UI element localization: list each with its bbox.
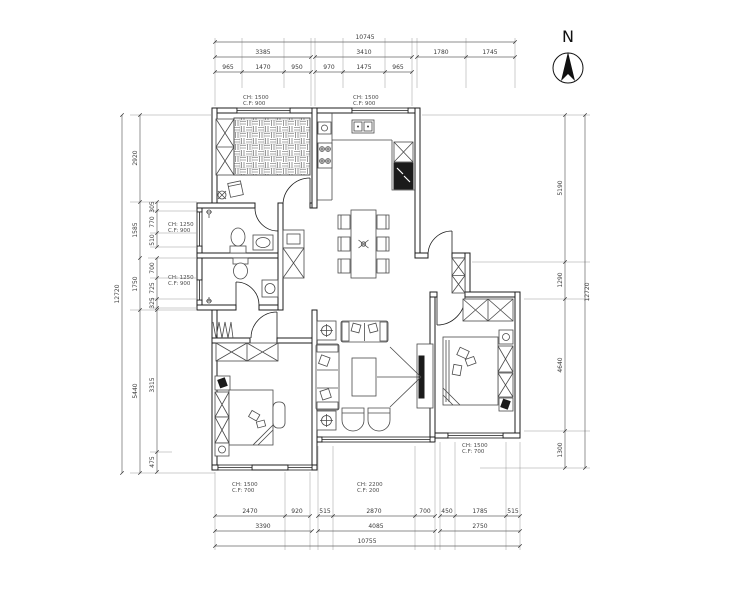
svg-text:1785: 1785 [472,508,487,515]
annotation-bath-lower: CH: 1250 C.F: 900 [168,275,194,287]
floor-lamp-icon [317,411,336,430]
north-needle [561,52,575,81]
shoe-cabinet [452,258,465,293]
nightstand [215,376,230,390]
north-arrow-icon: N [553,27,583,83]
kitchen-sink [318,122,331,134]
svg-text:475: 475 [149,456,156,468]
wardrobe-bedroom2 [216,343,278,361]
svg-text:4085: 4085 [368,523,383,530]
svg-text:1290: 1290 [557,272,564,287]
svg-text:10755: 10755 [357,538,376,545]
plant-icon [218,191,226,199]
svg-text:510: 510 [149,234,156,246]
door-master-bedroom [437,297,465,325]
bedroom2-furniture [215,343,285,456]
svg-text:970: 970 [323,64,335,71]
armchair [342,408,364,431]
svg-text:12720: 12720 [114,284,121,303]
svg-text:C.F: 900: C.F: 900 [353,101,376,107]
svg-text:2870: 2870 [366,508,381,515]
window-bath-upper [197,212,202,246]
floor-plan-drawing: N [0,0,740,592]
svg-text:965: 965 [392,64,404,71]
svg-text:C.F: 900: C.F: 900 [168,281,191,287]
svg-text:1475: 1475 [356,64,371,71]
bed-pillows [215,392,229,443]
north-label: N [562,27,574,46]
svg-text:C.F: 700: C.F: 700 [232,488,255,494]
chair [228,181,244,197]
washing-machine-icon [262,280,278,297]
window-bedroom2-b [288,465,312,470]
living-room-furniture [316,321,433,431]
window-top-right [352,108,408,113]
master-bedroom-furniture [443,299,513,411]
svg-text:3390: 3390 [255,523,270,530]
svg-text:1470: 1470 [255,64,270,71]
faucet-icon [206,297,212,303]
svg-text:920: 920 [291,508,303,515]
svg-text:1750: 1750 [132,276,139,291]
window-master [448,433,503,438]
floor-lamp-icon [317,321,336,340]
fridge-icon [394,163,413,189]
bathroom-lower-fixtures [206,258,278,303]
entry-furniture [452,258,465,293]
kitchen-cabinet [394,142,413,162]
svg-text:3315: 3315 [149,377,156,392]
svg-text:C.F: 700: C.F: 700 [462,449,485,455]
window-bedroom2-a [218,465,252,470]
svg-text:450: 450 [441,508,453,515]
door-bedroom2 [251,312,277,338]
svg-text:725: 725 [149,282,156,294]
toilet-icon [230,228,246,253]
svg-text:1585: 1585 [132,222,139,237]
armchair [368,408,390,431]
double-basin [352,120,374,133]
door-tatami-room [283,178,310,205]
annotation-top-left: CH: 1500 C.F: 900 [243,95,269,107]
svg-text:700: 700 [149,262,156,274]
door-bath-upper [255,208,278,231]
svg-text:965: 965 [222,64,234,71]
svg-text:2470: 2470 [242,508,257,515]
svg-text:515: 515 [319,508,331,515]
svg-text:2920: 2920 [132,150,139,165]
annotation-bath-upper: CH: 1250 C.F: 900 [168,222,194,234]
bathroom-upper-fixtures [206,210,273,253]
bed [229,390,273,445]
tatami-room-furniture [216,118,310,199]
hall-cabinet [283,230,304,278]
floor-plan-page: N [0,0,740,592]
svg-text:1780: 1780 [433,49,448,56]
annotation-bedroom2: CH: 1500 C.F: 700 [232,482,258,494]
nightstand-lamp [215,443,229,456]
nightstand [499,398,513,411]
door-entry [428,231,452,255]
door-bath-lower [236,282,259,305]
svg-text:770: 770 [149,216,156,228]
annotation-master: CH: 1500 C.F: 700 [462,443,488,455]
svg-text:950: 950 [291,64,303,71]
svg-text:C.F: 900: C.F: 900 [243,101,266,107]
svg-text:305: 305 [149,201,156,213]
window-living [322,437,430,442]
nightstand-lamp [499,330,513,344]
svg-text:1300: 1300 [557,442,564,457]
bed-pillows [498,346,513,397]
wardrobe-tatami [216,119,234,175]
svg-text:3385: 3385 [255,49,270,56]
svg-text:C.F: 200: C.F: 200 [357,488,380,494]
svg-text:515: 515 [507,508,519,515]
stove-icon [318,143,332,168]
window-top-left [237,108,290,113]
dining-furniture [283,210,389,278]
washbasin [253,235,273,250]
kitchen-furniture [317,113,415,200]
annotation-living: CH: 2200 C.F: 200 [357,482,383,494]
tatami-platform [234,118,310,175]
svg-text:10745: 10745 [355,34,374,41]
toilet-icon [233,258,248,279]
svg-text:5190: 5190 [557,180,564,195]
annotation-top-right: CH: 1500 C.F: 900 [353,95,379,107]
svg-text:700: 700 [419,508,431,515]
coffee-table [352,358,376,396]
svg-text:3410: 3410 [356,49,371,56]
loveseat [341,321,388,342]
sofa [316,344,339,410]
dimensions-bottom: 2470 920 515 2870 700 450 1785 515 3390 … [215,442,520,550]
bed [443,337,498,405]
svg-text:1745: 1745 [482,49,497,56]
faucet-icon [206,210,212,218]
window-bath-lower [197,280,202,300]
svg-text:325: 325 [149,297,156,309]
svg-text:4640: 4640 [557,357,564,372]
bedroom2-bench [273,402,285,428]
svg-text:5440: 5440 [132,383,139,398]
wardrobe-master [463,299,513,321]
svg-text:2750: 2750 [472,523,487,530]
svg-text:12720: 12720 [584,282,591,301]
tv-stand [377,344,433,408]
